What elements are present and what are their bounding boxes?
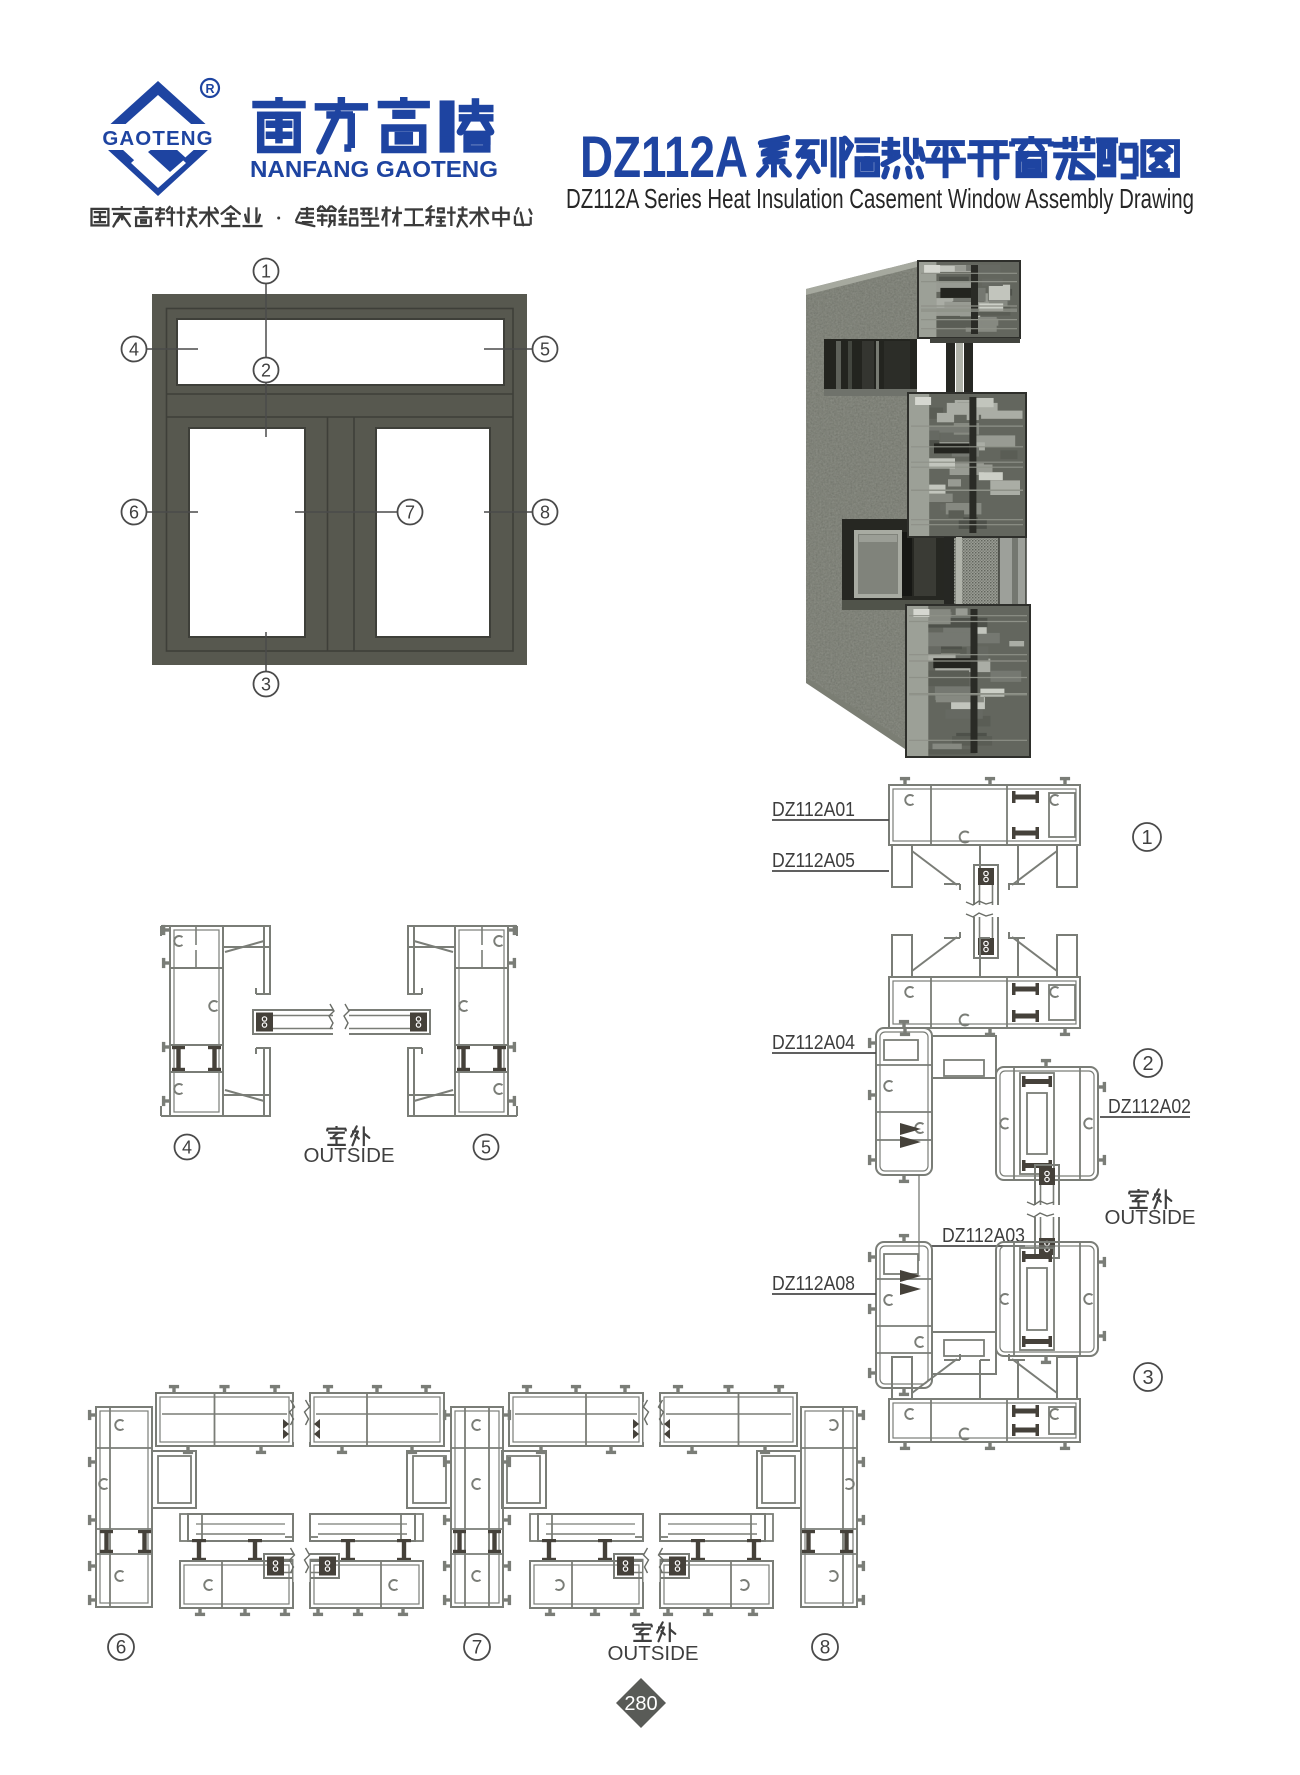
svg-text:8: 8 bbox=[820, 1638, 831, 1659]
svg-text:280: 280 bbox=[624, 1693, 657, 1715]
svg-text:DZ112A02: DZ112A02 bbox=[1108, 1096, 1191, 1118]
svg-text:DZ112A Series Heat Insulation: DZ112A Series Heat Insulation Casement W… bbox=[566, 183, 1194, 214]
svg-text:7: 7 bbox=[472, 1638, 483, 1659]
svg-text:OUTSIDE: OUTSIDE bbox=[607, 1642, 698, 1665]
svg-text:2: 2 bbox=[261, 360, 271, 380]
svg-text:1: 1 bbox=[261, 261, 271, 281]
svg-text:6: 6 bbox=[116, 1638, 127, 1659]
svg-text:DZ112A08: DZ112A08 bbox=[772, 1273, 855, 1295]
svg-text:5: 5 bbox=[540, 339, 550, 359]
svg-text:4: 4 bbox=[129, 339, 139, 359]
svg-text:3: 3 bbox=[261, 674, 271, 694]
svg-text:DZ112A03: DZ112A03 bbox=[942, 1225, 1025, 1247]
svg-text:4: 4 bbox=[182, 1137, 192, 1157]
svg-text:DZ112A: DZ112A bbox=[580, 125, 748, 190]
svg-text:2: 2 bbox=[1142, 1053, 1153, 1075]
svg-text:7: 7 bbox=[405, 502, 415, 522]
svg-text:R: R bbox=[205, 82, 214, 96]
svg-text:DZ112A01: DZ112A01 bbox=[772, 799, 855, 821]
svg-text:GAOTENG: GAOTENG bbox=[102, 127, 213, 150]
svg-text:OUTSIDE: OUTSIDE bbox=[1104, 1206, 1195, 1229]
svg-text:1: 1 bbox=[1141, 827, 1152, 849]
svg-text:5: 5 bbox=[481, 1137, 491, 1157]
svg-text:NANFANG GAOTENG: NANFANG GAOTENG bbox=[250, 156, 498, 182]
svg-text:6: 6 bbox=[129, 502, 139, 522]
svg-text:DZ112A05: DZ112A05 bbox=[772, 850, 855, 872]
svg-text:OUTSIDE: OUTSIDE bbox=[303, 1144, 394, 1167]
svg-text:8: 8 bbox=[540, 502, 550, 522]
svg-text:3: 3 bbox=[1142, 1367, 1153, 1389]
svg-text:DZ112A04: DZ112A04 bbox=[772, 1032, 855, 1054]
